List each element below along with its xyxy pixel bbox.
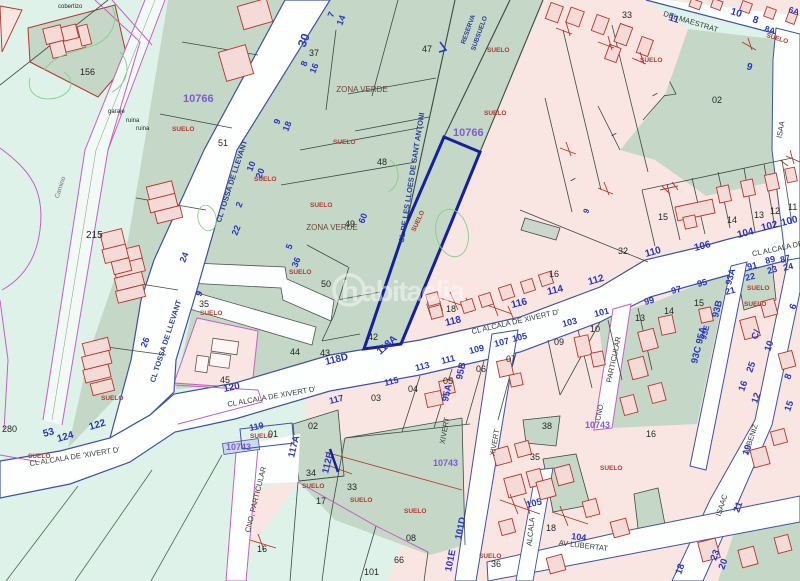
svg-text:h: h [341,276,357,308]
svg-text:SUELO: SUELO [289,269,311,276]
svg-text:17: 17 [316,496,326,506]
svg-text:156: 156 [80,67,95,77]
svg-text:abitaclia: abitaclia [361,276,466,308]
svg-text:48: 48 [377,157,387,167]
svg-text:02: 02 [308,421,318,431]
svg-text:10766: 10766 [183,93,214,105]
svg-text:08: 08 [406,533,416,543]
svg-text:33: 33 [622,10,632,20]
svg-text:05: 05 [443,376,453,386]
svg-text:16: 16 [257,544,267,554]
svg-text:10: 10 [590,324,600,334]
svg-text:14: 14 [727,215,737,225]
svg-text:ZONA VERDE: ZONA VERDE [306,223,358,232]
svg-text:09: 09 [554,337,564,347]
svg-text:10766: 10766 [453,127,484,139]
svg-text:104: 104 [571,531,587,543]
svg-text:18: 18 [546,523,556,533]
svg-text:SUELO: SUELO [484,110,506,117]
svg-text:ruina: ruina [126,118,140,124]
svg-text:32: 32 [618,246,628,256]
svg-text:43: 43 [320,348,330,358]
svg-text:cobertizo: cobertizo [58,4,83,10]
svg-text:03: 03 [371,393,381,403]
svg-text:07: 07 [506,354,516,364]
svg-text:SUELO: SUELO [487,47,509,54]
svg-text:04: 04 [408,384,418,394]
svg-text:SUELO: SUELO [310,202,332,209]
svg-text:SUELO: SUELO [479,553,501,560]
svg-text:SUELO: SUELO [200,310,222,317]
svg-text:13: 13 [754,210,764,220]
svg-text:14: 14 [664,306,674,316]
svg-text:SUELO: SUELO [350,497,372,504]
svg-text:101: 101 [364,567,379,577]
svg-text:35: 35 [199,299,209,309]
svg-text:10743: 10743 [433,458,458,468]
svg-text:SUELO: SUELO [302,483,324,490]
svg-text:SUELO: SUELO [172,126,194,133]
svg-text:SUELO: SUELO [254,176,276,183]
svg-text:11: 11 [788,202,797,212]
svg-text:36: 36 [491,559,501,569]
svg-text:SUELO: SUELO [640,57,662,64]
svg-text:42: 42 [368,332,378,342]
svg-text:SUELO: SUELO [28,453,50,460]
svg-text:33: 33 [347,482,357,492]
svg-text:66: 66 [394,555,404,565]
svg-text:SUELO: SUELO [333,139,355,146]
svg-text:13: 13 [635,313,645,323]
svg-text:45: 45 [220,375,230,385]
svg-text:garaje: garaje [108,109,125,115]
svg-text:ZONA VERDE: ZONA VERDE [336,85,388,94]
svg-text:SUELO: SUELO [747,285,769,292]
svg-text:12: 12 [770,206,780,216]
svg-text:44: 44 [290,347,300,357]
svg-text:SUELO: SUELO [744,301,766,308]
svg-text:34: 34 [306,468,316,478]
svg-text:215: 215 [86,230,103,241]
svg-text:15: 15 [658,212,668,222]
svg-text:15: 15 [694,298,704,308]
svg-text:280: 280 [2,424,17,434]
svg-text:02: 02 [712,95,722,105]
svg-text:10743: 10743 [585,420,610,430]
svg-text:ruina: ruina [136,126,150,132]
svg-text:47: 47 [422,44,432,54]
svg-text:SUELO: SUELO [600,465,622,472]
svg-text:50: 50 [321,279,331,289]
svg-text:SUELO: SUELO [404,508,426,515]
svg-text:06: 06 [476,364,486,374]
svg-text:16: 16 [549,269,559,279]
svg-text:SUELO: SUELO [101,395,123,402]
svg-text:51: 51 [218,138,228,148]
svg-text:10743: 10743 [226,442,251,452]
svg-text:37: 37 [309,48,319,58]
svg-text:35: 35 [530,452,540,462]
svg-text:16: 16 [646,429,656,439]
svg-text:38: 38 [542,421,552,431]
